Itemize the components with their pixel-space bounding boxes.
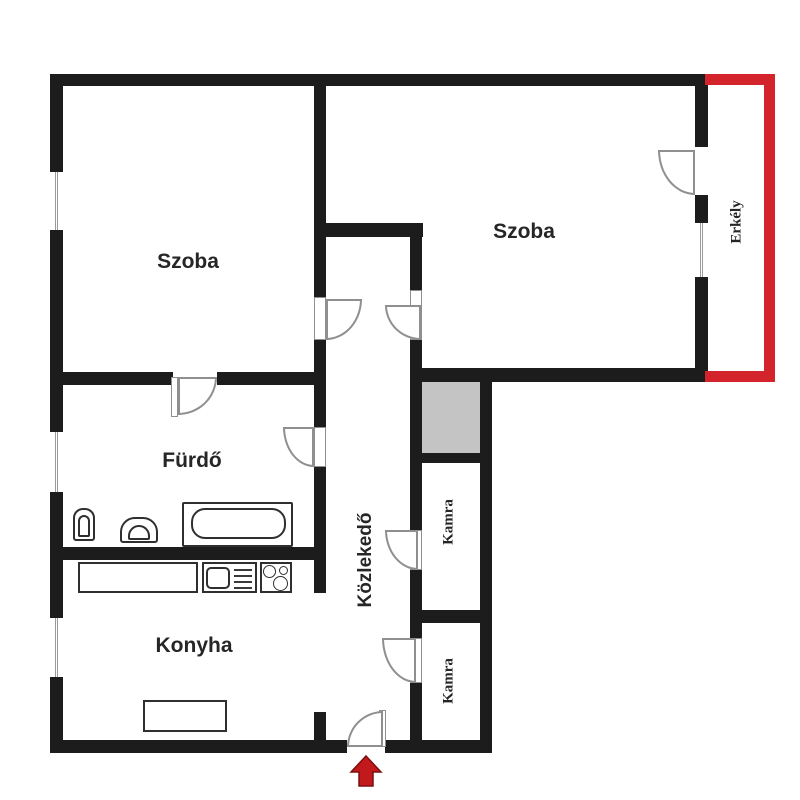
- kitchen-counter-icon: [78, 562, 198, 593]
- stove-burner-icon: [279, 566, 288, 575]
- wall-szoba-right-outer-b: [695, 195, 708, 223]
- wall-left-d: [50, 677, 63, 753]
- sink-drainer-line: [234, 575, 252, 577]
- sink-drainer-line: [234, 587, 252, 589]
- stove-burner-icon: [273, 576, 288, 591]
- door-arc-furdo-szoba-icon: [178, 377, 217, 415]
- room-label-erkely: Erkély: [729, 200, 746, 243]
- wall-bottom-b: [385, 740, 492, 753]
- sink-drainer-line: [234, 581, 252, 583]
- room-label-kamra-2: Kamra: [441, 658, 458, 704]
- kitchen-table-icon: [143, 700, 227, 732]
- wall-corridor-left-a: [314, 467, 326, 593]
- utility-shaft: [422, 382, 480, 453]
- balcony-outline-right: [764, 74, 775, 382]
- room-label-furdo: Fürdő: [162, 449, 221, 473]
- wall-szoba-left-right-a: [314, 74, 326, 297]
- wall-szoba-left-bottom-a: [50, 372, 173, 385]
- window-szoba-left-icon: [51, 172, 62, 230]
- window-szoba-right-icon: [696, 223, 707, 277]
- wall-left-c: [50, 492, 63, 618]
- washbasin-bowl-icon: [128, 525, 150, 540]
- door-arc-kamra-1-icon: [385, 530, 418, 570]
- window-konyha-icon: [51, 618, 62, 677]
- door-arc-szoba-right-icon: [385, 305, 421, 340]
- bathtub-basin-icon: [191, 508, 286, 539]
- floor-plan: Szoba Szoba Fürdő Konyha Közlekedő Kamra…: [0, 0, 800, 800]
- wall-kamra-right: [480, 382, 492, 740]
- room-label-konyha: Konyha: [155, 634, 232, 658]
- door-arc-entrance-icon: [347, 711, 383, 747]
- door-arc-furdo-corridor-icon: [283, 427, 314, 467]
- door-arc-kamra-2-icon: [382, 638, 416, 683]
- door-arc-szoba-left-icon: [326, 299, 362, 340]
- wall-szoba-left-right-b: [314, 340, 326, 427]
- room-label-szoba-right: Szoba: [493, 220, 555, 244]
- kitchen-sink-basin-icon: [206, 567, 230, 589]
- room-label-kozlekedo: Közlekedő: [355, 512, 377, 607]
- room-label-szoba-left: Szoba: [157, 250, 219, 274]
- wall-szoba-right-outer-c: [695, 277, 708, 382]
- wall-corridor-right-a: [410, 223, 422, 290]
- door-leaf-furdo-corridor: [314, 427, 326, 467]
- wall-corridor-left-b: [314, 712, 326, 740]
- wall-top: [50, 74, 708, 86]
- wall-szoba-right-bottom: [410, 368, 708, 382]
- wall-left-b: [50, 230, 63, 432]
- wall-corridor-right-b: [410, 340, 422, 368]
- wall-corridor-top: [314, 223, 423, 237]
- window-furdo-icon: [51, 432, 62, 492]
- sink-drainer-line: [234, 569, 252, 571]
- wall-kamra-left-c: [410, 683, 422, 740]
- wall-left-a: [50, 74, 63, 172]
- wall-bottom-a: [50, 740, 347, 753]
- wall-szoba-left-bottom-b: [217, 372, 317, 385]
- door-leaf-furdo-szoba: [171, 377, 178, 417]
- door-leaf-szoba-left: [314, 297, 326, 340]
- wall-furdo-konyha-divider: [50, 547, 324, 560]
- door-arc-balcony-icon: [658, 150, 695, 195]
- wall-kamra-left-b: [410, 570, 422, 638]
- entrance-arrow-icon: [349, 754, 383, 788]
- stove-burner-icon: [263, 565, 276, 578]
- wall-kamra-left-a: [410, 382, 422, 530]
- room-label-kamra-1: Kamra: [441, 499, 458, 545]
- toilet-bowl-icon: [78, 515, 90, 537]
- balcony-outline-bottom: [705, 371, 775, 382]
